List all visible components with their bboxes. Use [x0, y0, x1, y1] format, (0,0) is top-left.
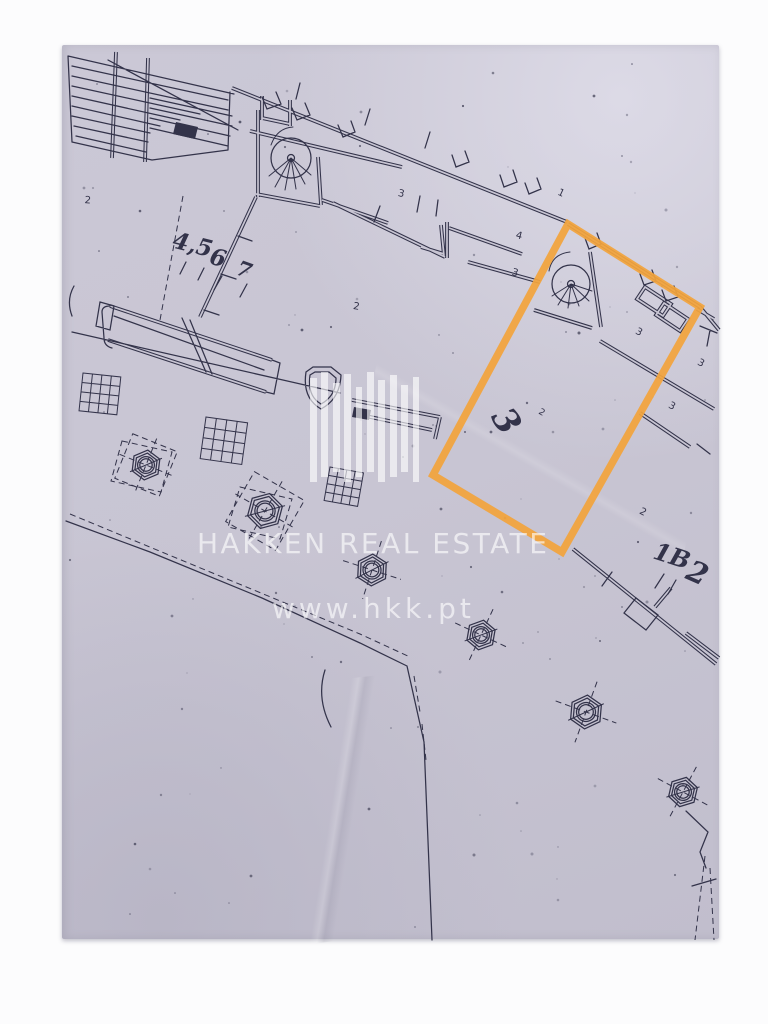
scanned-floorplan-photo: 2 3 1 4 3 2 2 3 3 3 2 4,5 6 7 3 1B 2 HAK… — [0, 0, 768, 1024]
watermark-website-text: www.hkk.pt — [272, 592, 475, 625]
spiral-staircase-icon — [269, 127, 311, 190]
highlighted-unit-outline — [433, 224, 700, 552]
watermark-brand-text: HAKKEN REAL ESTATE — [197, 527, 549, 560]
floor-plan-drawing — [0, 0, 768, 1024]
column-symbols — [109, 428, 722, 831]
agency-logo-watermark — [310, 372, 428, 488]
paper-speckles — [69, 63, 706, 928]
plan-linework — [66, 56, 717, 940]
label-2: 2 — [84, 196, 91, 207]
dashed-axis-lines — [70, 196, 714, 940]
spiral-staircase-icon — [549, 252, 592, 308]
